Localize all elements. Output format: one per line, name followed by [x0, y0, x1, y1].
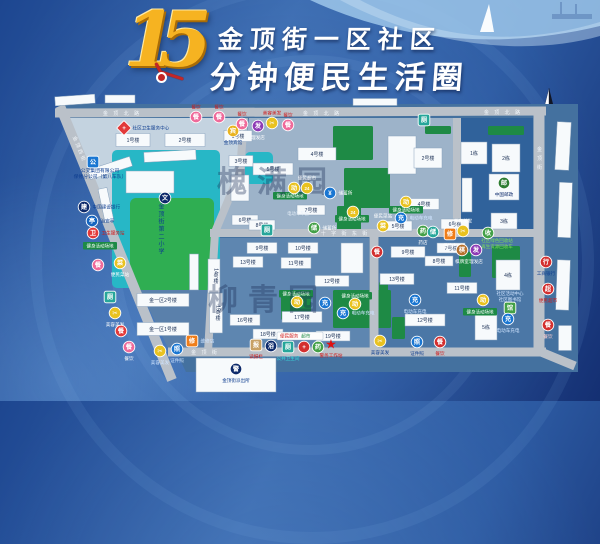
poi-glyph: +	[302, 344, 306, 351]
poi-label: 金顶街派出所	[222, 377, 250, 384]
service-sign-label: 便民服务	[280, 333, 299, 340]
building	[555, 122, 571, 171]
poi-label: 餐饮	[124, 355, 134, 362]
fitness-area-sign-label: 健身活动场地	[467, 309, 494, 316]
poi-label: 读报栏	[249, 353, 263, 360]
building-label: 2号楼	[179, 137, 192, 144]
poi-label: 警务工作站	[320, 352, 343, 359]
poi-glyph: 棋	[458, 246, 466, 254]
poi-glyph: ✂	[377, 338, 382, 345]
building-label: 3栋	[500, 218, 508, 225]
poi-glyph: 建	[80, 203, 88, 211]
poi-label: 美容美发	[151, 359, 170, 366]
poi-glyph: 餐	[193, 113, 200, 121]
poi-glyph: ¥	[328, 190, 332, 197]
poi-glyph: 餐	[216, 113, 223, 121]
poi-glyph: 厕	[107, 293, 113, 301]
building-label: 13号楼	[240, 259, 256, 266]
road-label: 金 顶 北 路	[103, 110, 141, 117]
poi-glyph: 餐	[545, 321, 552, 329]
poi-label: 公共卫生间	[277, 355, 300, 362]
building-label: 4栋	[504, 272, 512, 279]
poi-label: 电动车充电	[410, 215, 433, 222]
poi-label: 美容美发	[263, 110, 282, 117]
poi-glyph: 充	[322, 299, 329, 307]
map-text: 金顶街第二小学	[157, 202, 164, 255]
poi-glyph: 24	[305, 186, 310, 191]
poi-label: 餐饮	[435, 350, 445, 357]
poi-label: 工商银行	[537, 270, 556, 277]
poi-label: 金顶宾馆	[224, 139, 243, 146]
title-line1: 金顶街一区社区	[217, 20, 444, 56]
poi-glyph: 动	[294, 298, 300, 306]
poi-glyph: 卫	[90, 230, 97, 237]
building-label: 8号楼	[433, 258, 446, 265]
service-sign-label: 超市	[301, 333, 311, 340]
building	[559, 326, 572, 351]
poi-glyph: 浴	[268, 342, 275, 350]
poi-glyph: 餐	[437, 338, 444, 346]
poi-label: 药店	[418, 239, 428, 246]
poi-glyph: 动	[403, 198, 409, 206]
building-label: 金一区1号楼	[149, 326, 177, 333]
poi-label: 餐饮	[543, 333, 553, 340]
poi-label: 证件照	[170, 357, 184, 364]
clock-center-icon	[156, 72, 167, 83]
road-label: 金顶街	[536, 146, 542, 174]
poi-glyph: 储	[310, 224, 318, 232]
poster-header: 15 金顶街一区社区 分钟便民生活圈	[0, 0, 600, 100]
poi-glyph: 修	[188, 337, 196, 345]
poi-glyph: 文	[162, 194, 169, 202]
poi-glyph: 动	[480, 296, 486, 304]
poi-glyph: 储	[429, 228, 437, 236]
poi-glyph: 24	[351, 210, 356, 215]
poi-label: 便民超市	[298, 175, 317, 182]
building-label: 1号楼	[127, 137, 140, 144]
poi-glyph: 餐	[285, 121, 292, 129]
building-label: 9号楼	[402, 249, 415, 256]
road-label: 金 顶 北 路	[303, 110, 341, 117]
poi-glyph: ✂	[269, 120, 274, 127]
building-label: 16号楼	[237, 317, 253, 324]
poi-glyph: 照	[174, 345, 181, 353]
building	[556, 260, 571, 310]
building-label: 13号楼	[389, 276, 405, 283]
building-label: 18号楼	[260, 331, 276, 338]
poi-glyph: 亭	[89, 217, 95, 225]
building-label: 4号楼	[311, 151, 324, 158]
poi-label: 电动车充电	[404, 308, 427, 315]
road-label: 金 顶 北 路	[484, 109, 522, 116]
poi-label: 美容美发	[371, 349, 390, 356]
poi-label: 电动车充电	[497, 327, 520, 334]
green-area	[425, 126, 451, 134]
poi-glyph: 充	[505, 315, 512, 323]
poi-label: 储蓄所	[339, 190, 353, 197]
poi-glyph: 超	[544, 285, 552, 293]
school-field	[130, 198, 214, 290]
poi-glyph: 警	[232, 365, 240, 373]
poi-glyph: 动	[352, 300, 358, 308]
poi-label: 便民超市	[539, 297, 558, 304]
fitness-area-sign-label: 健身活动场地	[87, 243, 114, 250]
building	[462, 178, 472, 212]
poi-glyph: 宾	[230, 127, 236, 135]
poi-glyph: 充	[412, 296, 419, 304]
poi-glyph: ✂	[112, 310, 117, 317]
poi-glyph: 餐	[374, 248, 381, 256]
building-label: 2栋	[502, 155, 510, 162]
poi-label: 棋牌室	[455, 258, 469, 265]
poi-glyph: 充	[398, 214, 405, 222]
poi-glyph: 动	[291, 184, 297, 192]
building-label: 14号楼	[213, 268, 219, 285]
poi-glyph: 馆	[507, 304, 513, 312]
green-area	[379, 282, 388, 318]
green-area	[344, 168, 390, 208]
map-text: 电动车车棚	[287, 210, 308, 217]
poi-glyph: +	[122, 125, 126, 132]
poi-glyph: 行	[542, 258, 550, 266]
green-area	[392, 317, 405, 339]
poi-label: 理发店	[469, 258, 483, 265]
building-label: 3号楼	[235, 158, 248, 165]
poi-glyph: 修	[446, 230, 454, 238]
poi-glyph: ✂	[460, 228, 465, 235]
poi-label: 美容美发	[454, 218, 473, 225]
poi-label: 卫生服务站	[102, 230, 125, 237]
estate-watermark: 柳青园	[208, 284, 328, 317]
green-area	[333, 126, 373, 160]
poi-glyph: 餐	[118, 327, 125, 335]
poi-glyph: 餐	[126, 343, 133, 351]
poi-label: 便民菜站	[111, 271, 130, 278]
building	[341, 243, 363, 273]
building-label: 11号楼	[288, 260, 303, 267]
poi-glyph: 厕	[264, 226, 270, 234]
building-label: 10号楼	[295, 245, 311, 252]
building	[190, 254, 199, 290]
building-label: 11号楼	[454, 285, 469, 292]
estate-watermark: 槐满园	[217, 166, 337, 199]
poi-glyph: 餐	[239, 120, 246, 128]
road-label: 金 顶 街	[191, 349, 219, 356]
poi-glyph: 菜	[379, 222, 387, 230]
poi-label: 中国建设银行	[93, 204, 121, 211]
green-area	[488, 126, 524, 135]
poi-glyph: 厕	[421, 116, 427, 124]
poi-glyph: 照	[414, 338, 421, 346]
building-label: 5栋	[482, 324, 490, 331]
poi-label: 餐饮	[191, 104, 201, 111]
poi-label: 餐饮	[214, 104, 224, 111]
building	[388, 136, 416, 174]
map-text: 公交集团有限公司保修分公司（第八车队）	[74, 167, 127, 180]
poi-label: 餐饮	[237, 111, 247, 118]
poi-glyph: 发	[254, 122, 262, 130]
poi-glyph: 菜	[116, 259, 124, 267]
poi-glyph: 餐	[95, 261, 102, 269]
poi-label: 维修店	[201, 338, 215, 345]
poi-label: 电动车充电	[352, 310, 375, 317]
poi-label: 治安亭	[101, 218, 115, 225]
poi-glyph: 药	[420, 227, 426, 235]
building-label: 9号楼	[256, 245, 269, 252]
poi-glyph: 发	[472, 246, 480, 254]
poi-glyph: 公	[90, 159, 97, 166]
poi-label: 储蓄所	[323, 225, 337, 232]
building-label: 1栋	[470, 150, 478, 157]
poi-label: 社区卫生服务中心	[133, 125, 170, 132]
building-label: 12号楼	[417, 317, 433, 324]
poi-glyph: 厕	[285, 343, 291, 351]
poi-glyph: 充	[340, 309, 347, 317]
poi-glyph: 药	[315, 343, 321, 351]
building	[558, 182, 573, 237]
poi-label: 中国邮政	[495, 191, 514, 198]
road-label: 十 字 街 东 街	[321, 230, 370, 237]
building-label: 2号楼	[422, 155, 435, 162]
poi-glyph: ✂	[157, 348, 162, 355]
map-text: 社区活动中心社区图书馆	[497, 290, 524, 303]
poi-label: 便民菜站	[374, 213, 393, 220]
building-label: 金一区2号楼	[149, 297, 177, 304]
poi-glyph: 邮	[501, 179, 508, 187]
poi-glyph: 报	[253, 341, 260, 349]
poi-label: 餐饮	[283, 112, 293, 119]
poi-label: 证件照	[410, 350, 424, 357]
poi-glyph: 收	[485, 229, 492, 237]
poi-star-icon: ★	[325, 337, 337, 352]
title-line2: 分钟便民生活圈	[208, 52, 470, 97]
building	[126, 171, 174, 193]
poi-label: 理发店	[251, 134, 265, 141]
poi-label: 维修店	[443, 242, 457, 249]
